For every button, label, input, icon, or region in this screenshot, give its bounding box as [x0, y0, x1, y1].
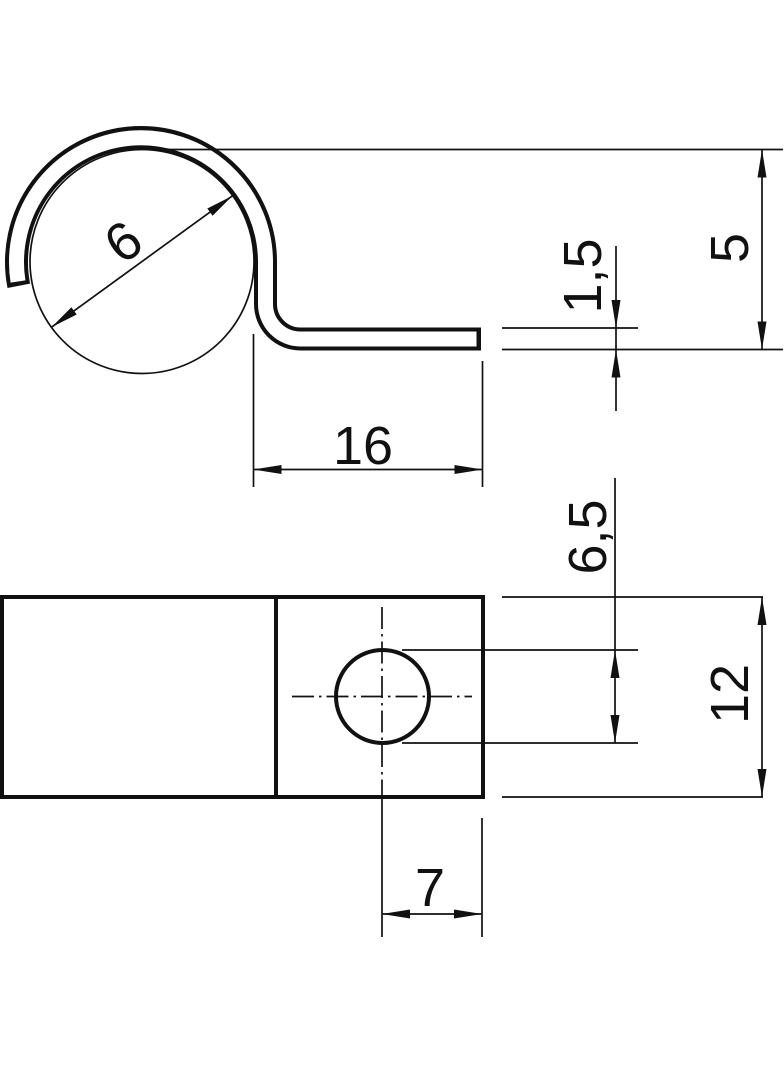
arrowhead [455, 465, 483, 474]
technical-drawing: 6 16 1,5 5 6,5 [0, 0, 784, 1066]
arrowhead [758, 769, 767, 797]
arrowhead [758, 322, 767, 350]
dim-label-plate-width: 12 [700, 664, 760, 724]
arrowhead [382, 910, 410, 919]
arrowhead [611, 650, 620, 678]
dim-label-tail-height: 5 [700, 233, 760, 263]
arrowhead [254, 465, 282, 474]
plan-view: 6,5 12 7 [2, 478, 767, 937]
clip-band-core [17, 138, 477, 339]
arrowhead [612, 350, 621, 378]
arrowhead [758, 150, 767, 178]
arrowhead [758, 597, 767, 625]
drawing-canvas: 6 16 1,5 5 6,5 [0, 0, 784, 1066]
dim-label-tail-length: 16 [333, 416, 393, 476]
dim-label-material-thickness: 1,5 [553, 238, 613, 313]
side-view: 6 16 1,5 5 [16, 137, 783, 487]
dim-label-cable-diameter: 6 [93, 209, 153, 275]
clip-band-outline [16, 137, 481, 339]
dim-label-hole-diameter: 6,5 [558, 499, 618, 574]
arrowhead [611, 715, 620, 743]
arrowhead [51, 307, 76, 327]
arrowhead [454, 910, 482, 919]
dim-label-hole-to-edge: 7 [415, 858, 445, 918]
arrowhead [207, 196, 232, 216]
